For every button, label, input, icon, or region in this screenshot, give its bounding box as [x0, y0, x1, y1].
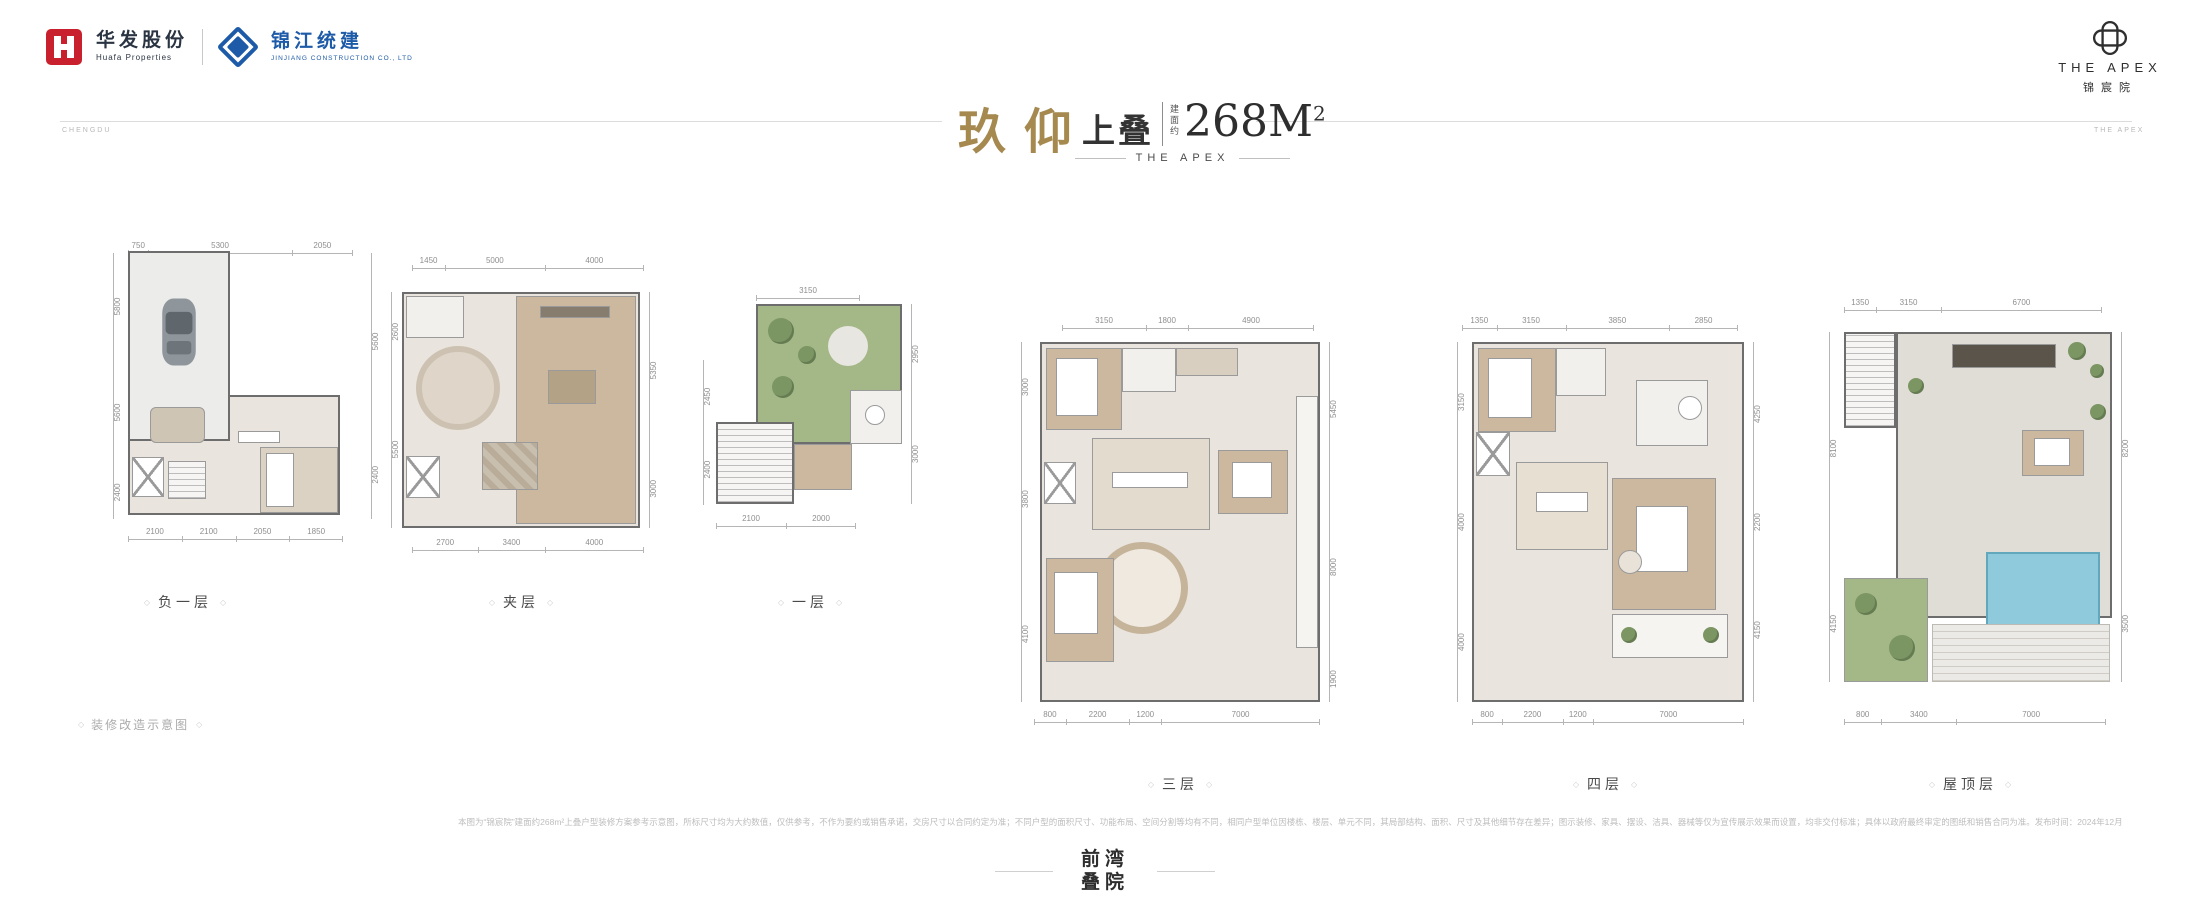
dim-value: 3000: [1021, 342, 1030, 432]
dim-value: 7000: [1161, 710, 1320, 723]
floorplan-first-floor: 3150 2450 2400 2950 3000 2100 2000: [700, 270, 940, 570]
ornament-icon: ◇: [220, 598, 226, 607]
dim-row-bottom: 2700 3400 4000: [412, 538, 644, 551]
elevator-icon: [406, 456, 440, 498]
dim-value: 4250: [1753, 342, 1762, 486]
dim-value: 3400: [478, 538, 544, 551]
pool: [1986, 552, 2100, 626]
elevator-icon: [1044, 462, 1076, 504]
dim-value: 800: [1844, 710, 1881, 723]
huafa-logo-icon: [46, 29, 82, 65]
dim-value: 1350: [1844, 298, 1876, 311]
dim-col-left: 2450 2400: [700, 360, 714, 505]
garden-area: [1844, 578, 1928, 682]
dim-value: 4150: [1829, 565, 1838, 682]
page-title: 玖仰: [958, 92, 1090, 162]
table: [548, 370, 596, 404]
dining-table: [2034, 438, 2070, 466]
brand-name-en: THE APEX: [2058, 60, 2162, 75]
dim-col-right: 5450 8000 1900: [1326, 342, 1340, 702]
dim-row-top: 1450 5000 4000: [412, 256, 644, 269]
elevator-icon: [1476, 432, 1510, 476]
footer-logo: 前湾 叠院: [1058, 848, 1152, 894]
dim-value: 4000: [545, 256, 644, 269]
dim-value: 3150: [1876, 298, 1941, 311]
ornament-icon: ◇: [1148, 780, 1154, 789]
dim-row-top: 3150: [756, 286, 860, 299]
terrace-table: [865, 405, 885, 425]
dim-value: 3800: [1021, 432, 1030, 567]
dim-row-bottom: 2100 2100 2050 1850: [128, 527, 343, 540]
dim-col-left: 2600 5500: [388, 292, 402, 528]
ornament-icon: ◇: [2005, 780, 2011, 789]
floorplan-fourth-floor: 1350 3150 3850 2850 3150 4000 4000 4250 …: [1440, 310, 1770, 740]
kitchen-island: [238, 431, 280, 443]
dim-value: 3150: [1457, 342, 1466, 462]
footer-line-left: [995, 871, 1053, 872]
dim-value: 5350: [649, 292, 658, 449]
kitchen-counter: [266, 453, 294, 507]
dim-value: 800: [1472, 710, 1502, 723]
kitchen-island: [1112, 472, 1188, 488]
caption-roof: ◇ 屋顶层 ◇: [1820, 774, 2120, 794]
dim-value: 2700: [412, 538, 478, 551]
subtitle-text: THE APEX: [1136, 152, 1230, 164]
header-rule-left: [60, 121, 942, 122]
footer-line-right: [1157, 871, 1215, 872]
wardrobe: [1176, 348, 1238, 376]
bed: [1488, 358, 1532, 418]
dim-col-left: 3150 4000 4000: [1454, 342, 1468, 702]
dim-value: 2950: [911, 304, 920, 404]
ornament-icon: ◇: [1631, 780, 1637, 789]
footnote-label: 装修改造示意图: [91, 716, 189, 733]
stair-icon: [168, 461, 206, 499]
dim-row-bottom: 800 2200 1200 7000: [1034, 710, 1320, 723]
ornament-icon: ◇: [836, 598, 842, 607]
footer-logo-line2: 叠院: [1058, 871, 1152, 894]
caption-basement: ◇ 负一层 ◇: [60, 592, 310, 612]
edge-label-left: CHENGDU: [62, 127, 111, 134]
bathtub: [1678, 396, 1702, 420]
garden-path: [828, 326, 868, 366]
bed: [1054, 572, 1098, 634]
caption-third-floor: ◇ 三层 ◇: [1005, 774, 1355, 794]
dim-row-top: 1350 3150 3850 2850: [1462, 316, 1738, 329]
dim-col-left: 5800 5600 2400: [110, 253, 124, 519]
dim-value: 4000: [545, 538, 644, 551]
dim-value: 3150: [1062, 316, 1146, 329]
dim-value: 3850: [1566, 316, 1670, 329]
dim-row-bottom: 800 2200 1200 7000: [1472, 710, 1744, 723]
renovation-footnote: ◇ 装修改造示意图 ◇: [78, 716, 202, 733]
floor-label: 三层: [1162, 774, 1198, 794]
dim-value: 3500: [2121, 565, 2130, 682]
floorplan-third-floor: 3150 1800 4900 3000 3800 4100 5450 8000 …: [1000, 310, 1350, 740]
dim-row-top: 3150 1800 4900: [1062, 316, 1314, 329]
deck-area: [1932, 624, 2110, 682]
dim-value: 3400: [1881, 710, 1956, 723]
balcony: [1296, 396, 1318, 648]
jinjiang-logo-icon: [217, 26, 259, 68]
ornament-icon: ◇: [144, 598, 150, 607]
ornament-icon: ◇: [78, 720, 84, 729]
jinjiang-name-cn: 锦江统建: [271, 32, 413, 53]
elevator-icon: [132, 457, 164, 497]
car-icon: [160, 293, 198, 371]
ornament-icon: ◇: [1929, 780, 1935, 789]
huafa-name-cn: 华发股份: [96, 31, 188, 52]
dim-value: 5450: [1329, 342, 1338, 477]
bed: [1056, 358, 1098, 416]
floor-label: 四层: [1587, 774, 1623, 794]
tv-cabinet: [540, 306, 610, 318]
dim-value: 4000: [1457, 582, 1466, 702]
dim-value: 4000: [1457, 462, 1466, 582]
ornament-icon: ◇: [1573, 780, 1579, 789]
caption-first-floor: ◇ 一层 ◇: [700, 592, 920, 612]
bathroom: [1556, 348, 1606, 396]
dim-value: 1350: [1462, 316, 1497, 329]
dim-value: 5600: [113, 359, 122, 465]
dim-col-right: 5350 3000: [646, 292, 660, 528]
disclaimer-text: 本图为“锦宸院”建面约268m²上叠户型装修方案参考示意图，所标尺寸均为大约数值…: [458, 816, 1748, 828]
dim-value: 2050: [236, 527, 290, 540]
dim-value: 2100: [716, 514, 786, 527]
sofa: [150, 407, 205, 443]
dim-value: 4900: [1188, 316, 1314, 329]
title-area-value: 268M: [1184, 96, 1313, 147]
dim-value: 6700: [1941, 298, 2102, 311]
dim-value: 2400: [113, 466, 122, 519]
ornament-icon: ◇: [196, 720, 202, 729]
jinjiang-name-en: JINJIANG CONSTRUCTION CO., LTD: [271, 55, 413, 62]
bathroom: [1122, 348, 1176, 392]
dim-value: 5000: [445, 256, 544, 269]
dim-value: 1200: [1129, 710, 1161, 723]
ornament-icon: ◇: [489, 598, 495, 607]
dining-table: [1232, 462, 1272, 498]
dim-value: 2100: [182, 527, 236, 540]
chinese-knot-icon: [2092, 20, 2128, 56]
bed: [1636, 506, 1688, 572]
footer-logo-line1: 前湾: [1058, 848, 1152, 871]
bathroom: [406, 296, 464, 338]
dim-value: 3150: [756, 286, 860, 299]
dim-row-bottom: 800 3400 7000: [1844, 710, 2106, 723]
dim-value: 2000: [786, 514, 856, 527]
stair-icon: [716, 422, 794, 504]
floor-label: 负一层: [158, 592, 212, 612]
dim-value: 4150: [1753, 558, 1762, 702]
title-area-prefix: 建面约: [1168, 104, 1181, 146]
dim-value: 3000: [649, 449, 658, 528]
huafa-name-en: Huafa Properties: [96, 54, 188, 63]
subtitle-line-left: [1075, 158, 1126, 159]
dim-col-right: 2950 3000: [908, 304, 922, 504]
title-subtitle: THE APEX: [1075, 152, 1290, 164]
dim-col-left: 8100 4150: [1826, 332, 1840, 682]
ornament-icon: ◇: [547, 598, 553, 607]
dim-row-top: 1350 3150 6700: [1844, 298, 2102, 311]
dim-value: 2850: [1669, 316, 1738, 329]
dim-col-right: 4250 2200 4150: [1750, 342, 1764, 702]
round-rug: [416, 346, 500, 430]
bar-counter: [1952, 344, 2056, 368]
title-divider: [1162, 102, 1163, 146]
logo-divider: [202, 29, 203, 65]
patterned-rug: [482, 442, 538, 490]
dim-value: 1200: [1563, 710, 1593, 723]
balcony: [1612, 614, 1728, 658]
dim-value: 2200: [1753, 486, 1762, 558]
brand-block: THE APEX 锦宸院: [2040, 20, 2180, 95]
stair-icon: [1844, 332, 1896, 428]
caption-mezzanine: ◇ 夹层 ◇: [390, 592, 652, 612]
caption-fourth-floor: ◇ 四层 ◇: [1440, 774, 1770, 794]
header-rule-right: [1256, 121, 2132, 122]
floor-label: 一层: [792, 592, 828, 612]
header-logos: 华发股份 Huafa Properties 锦江统建 JINJIANG CONS…: [46, 28, 413, 66]
dim-value: 5500: [391, 371, 400, 528]
floor-label: 屋顶层: [1943, 774, 1997, 794]
dim-col-right: 8200 3500: [2118, 332, 2132, 682]
dim-value: 3000: [911, 404, 920, 504]
desk: [1536, 492, 1588, 512]
dim-value: 7000: [1593, 710, 1744, 723]
dim-value: 1850: [289, 527, 343, 540]
brand-name-cn: 锦宸院: [2083, 79, 2137, 95]
dim-value: 4100: [1021, 567, 1030, 702]
lounge-chair: [1618, 550, 1642, 574]
floorplan-roof: 1350 3150 6700 8100 4150 8200 3500 800 3…: [1820, 290, 2160, 740]
floorplan-mezzanine: 1450 5000 4000 2600 5500 5350 3000 2700 …: [390, 250, 660, 570]
dim-value: 2400: [703, 433, 712, 506]
floor-label: 夹层: [503, 592, 539, 612]
dim-row-bottom: 2100 2000: [716, 514, 856, 527]
dim-value: 3150: [1497, 316, 1566, 329]
dim-value: 1800: [1146, 316, 1188, 329]
dim-col-right: 5600 2400: [368, 253, 382, 519]
entry-deck: [794, 444, 852, 490]
dim-value: 2600: [391, 292, 400, 371]
dim-value: 2200: [1502, 710, 1562, 723]
dim-value: 2100: [128, 527, 182, 540]
dim-value: 7000: [1956, 710, 2106, 723]
dim-value: 8100: [1829, 332, 1838, 565]
dim-value: 2450: [703, 360, 712, 433]
subtitle-line-right: [1239, 158, 1290, 159]
dim-value: 8000: [1329, 477, 1338, 657]
dim-value: 2050: [292, 241, 353, 254]
dim-value: 5600: [371, 253, 380, 430]
dim-value: 1900: [1329, 657, 1338, 702]
ornament-icon: ◇: [778, 598, 784, 607]
dim-value: 8200: [2121, 332, 2130, 565]
title-area-sup: 2: [1313, 101, 1326, 125]
dim-value: 2400: [371, 430, 380, 519]
dim-value: 800: [1034, 710, 1066, 723]
floorplan-basement: 750 5300 2050 5800 5600 2400 5600 2400 2…: [110, 235, 390, 555]
dim-value: 2200: [1066, 710, 1130, 723]
dim-value: 5800: [113, 253, 122, 359]
ornament-icon: ◇: [1206, 780, 1212, 789]
title-type: 上叠: [1082, 104, 1154, 152]
dim-col-left: 3000 3800 4100: [1018, 342, 1032, 702]
dim-value: 1450: [412, 256, 445, 269]
title-area: 268M2: [1184, 96, 1326, 147]
edge-label-right: THE APEX: [2094, 127, 2144, 134]
